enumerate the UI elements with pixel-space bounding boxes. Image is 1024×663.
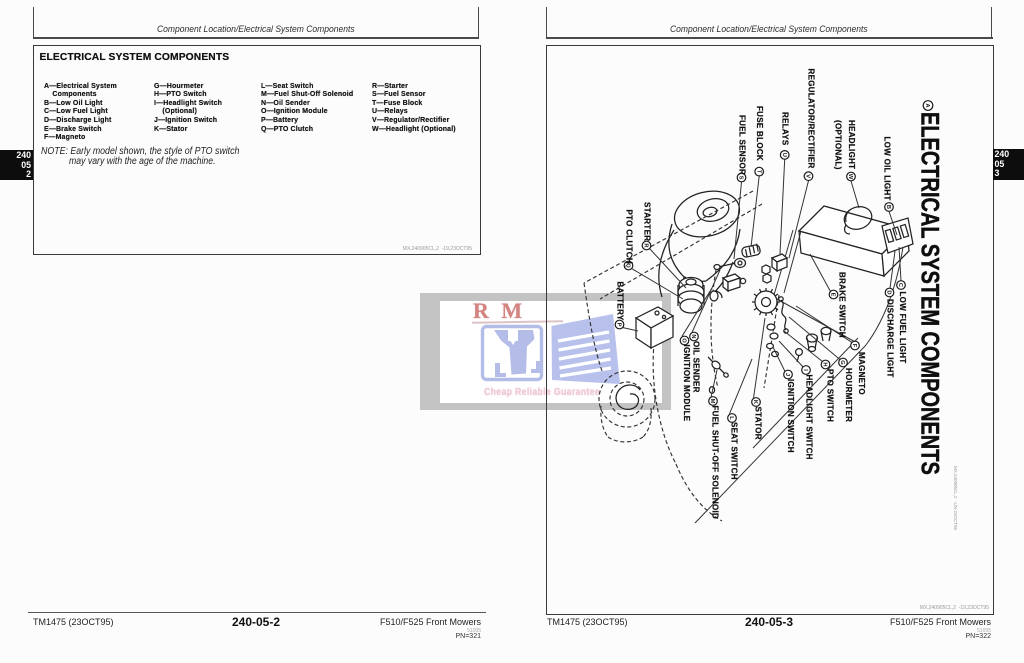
svg-text:SEAT SWITCH: SEAT SWITCH	[729, 422, 738, 480]
svg-text:MAGNETO: MAGNETO	[857, 352, 866, 395]
svg-text:H: H	[822, 362, 828, 366]
svg-text:J: J	[784, 373, 790, 376]
svg-text:T: T	[755, 170, 761, 174]
svg-text:E: E	[830, 293, 836, 297]
svg-text:L: L	[728, 416, 734, 420]
svg-text:HEADLIGHT: HEADLIGHT	[847, 120, 856, 169]
svg-text:BRAKE SWITCH: BRAKE SWITCH	[838, 272, 847, 338]
svg-text:P: P	[616, 323, 622, 327]
svg-text:FUEL SENSOR: FUEL SENSOR	[737, 115, 746, 175]
svg-text:D: D	[886, 290, 892, 294]
svg-text:Q: Q	[625, 263, 631, 268]
svg-text:DISCHARGE LIGHT: DISCHARGE LIGHT	[885, 299, 894, 378]
svg-text:V: V	[805, 174, 811, 178]
svg-text:W: W	[847, 174, 853, 180]
svg-text:RELAYS: RELAYS	[781, 112, 790, 146]
svg-text:(OPTIONAL): (OPTIONAL)	[834, 120, 843, 170]
svg-text:REGULATOR/RECTIFIER: REGULATOR/RECTIFIER	[807, 69, 816, 169]
svg-text:-UN-23OCT95: -UN-23OCT95	[953, 501, 958, 531]
svg-text:M: M	[709, 399, 715, 404]
svg-text:HOURMETER: HOURMETER	[844, 368, 853, 422]
svg-text:STARTER: STARTER	[642, 202, 651, 241]
svg-text:S: S	[738, 176, 744, 180]
svg-text:G: G	[839, 360, 845, 365]
svg-text:HEADLIGHT SWITCH: HEADLIGHT SWITCH	[804, 375, 813, 460]
svg-text:LOW OIL LIGHT: LOW OIL LIGHT	[883, 137, 892, 201]
svg-text:FUEL SHUT-OFF SOLENOID: FUEL SHUT-OFF SOLENOID	[710, 406, 719, 520]
svg-text:LOW FUEL LIGHT: LOW FUEL LIGHT	[898, 292, 907, 364]
svg-text:PTO SWITCH: PTO SWITCH	[825, 369, 834, 422]
svg-text:MX,240905CL,2: MX,240905CL,2	[953, 466, 958, 499]
svg-text:STATOR: STATOR	[753, 407, 762, 440]
svg-text:IGNITION SWITCH: IGNITION SWITCH	[786, 379, 795, 453]
svg-text:U: U	[781, 153, 787, 157]
svg-text:OIL SENDER: OIL SENDER	[691, 341, 700, 393]
svg-text:N: N	[690, 334, 696, 338]
svg-text:PTO CLUTCH: PTO CLUTCH	[624, 210, 633, 264]
svg-text:F: F	[851, 344, 857, 348]
svg-text:BATTERY: BATTERY	[615, 282, 624, 321]
svg-text:ELECTRICAL SYSTEM COMPONENTS: ELECTRICAL SYSTEM COMPONENTS	[916, 112, 944, 475]
svg-text:FUSE BLOCK: FUSE BLOCK	[755, 106, 764, 161]
svg-text:O: O	[681, 338, 687, 343]
svg-text:B: B	[885, 205, 891, 209]
svg-text:IGNITION MODULE: IGNITION MODULE	[682, 345, 691, 422]
